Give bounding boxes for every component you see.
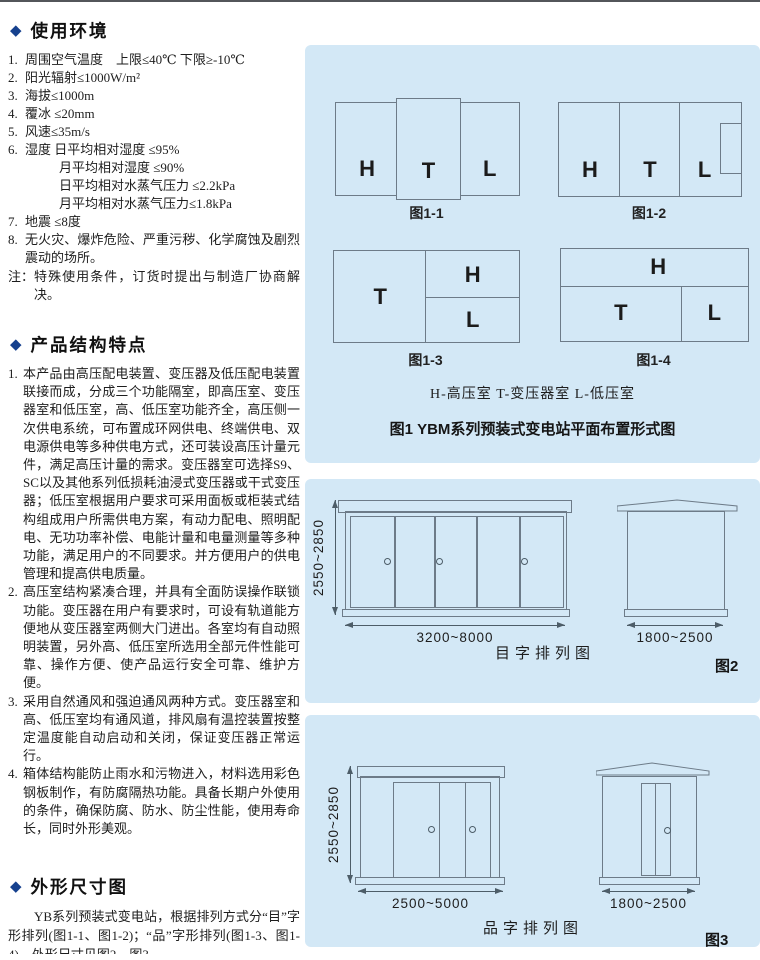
- plan-caption: 图1-2: [558, 203, 740, 223]
- cabinet-side-body: [627, 511, 725, 611]
- note-label: 注：: [8, 268, 34, 304]
- door-handle: [384, 558, 391, 565]
- door-handle: [436, 558, 443, 565]
- side-width-dimension-label: 1800~2500: [607, 630, 743, 645]
- plinth: [599, 877, 700, 885]
- env-item-text: 日平均相对水蒸气压力 ≤2.2kPa: [59, 177, 300, 195]
- section-heading-environment: ◆ 使用环境: [10, 18, 300, 43]
- env-item-subline: 月平均相对湿度 ≤90%: [8, 159, 300, 177]
- feature-number: 2.: [8, 583, 23, 692]
- left-column: ◆ 使用环境 1.周围空气温度 上限≤40℃ 下限≥-10℃ 2.阳光辐射≤10…: [8, 8, 300, 954]
- env-item-text: 周围空气温度 上限≤40℃ 下限≥-10℃: [25, 51, 300, 69]
- door-handle: [664, 827, 671, 834]
- outline-paragraph: YB系列预装式变电站，根据排列方式分“目”字形排列(图1-1、图1-2)；“品”…: [8, 907, 300, 954]
- env-item: 5.风速≤35m/s: [8, 123, 300, 141]
- room-label-l: L: [483, 156, 496, 182]
- feature-paragraph: 1.本产品由高压配电装置、变压器及低压配电装置联接而成，分成三个功能隔室，即高压…: [8, 365, 300, 583]
- env-item-number: 8.: [8, 231, 25, 267]
- elevation-caption: 品字排列图: [433, 917, 633, 938]
- small-compartment: [720, 123, 742, 173]
- room-label-t: T: [374, 284, 387, 310]
- env-item: 6.湿度 日平均相对湿度 ≤95%: [8, 141, 300, 159]
- feature-paragraph: 2.高压室结构紧凑合理，并具有全面防误操作联锁功能。变压器在用户有要求时，可设有…: [8, 583, 300, 692]
- room-label-h: H: [359, 156, 375, 182]
- room-label-h: H: [465, 262, 481, 288]
- feature-number: 3.: [8, 693, 23, 766]
- env-item-number: 4.: [8, 105, 25, 123]
- env-item: 3.海拔≤1000m: [8, 87, 300, 105]
- side-width-dimension-line: [627, 625, 723, 626]
- plan-fig1-4: H T L: [560, 248, 749, 342]
- section-title: 外形尺寸图: [31, 874, 129, 899]
- diamond-icon: ◆: [10, 23, 22, 38]
- note-row: 注： 特殊使用条件，订货时提出与制造厂协商解决。: [8, 268, 300, 304]
- height-dimension-label: 2550~2850: [326, 772, 341, 877]
- env-item: 7.地震 ≤8度: [8, 213, 300, 231]
- door-handle: [521, 558, 528, 565]
- door: [439, 782, 491, 878]
- plinth: [342, 609, 570, 617]
- door: [476, 516, 521, 608]
- room-label-h: H: [582, 157, 598, 183]
- feature-paragraph: 4.箱体结构能防止雨水和污物进入，材料选用彩色钢板制作，有防腐隔热功能。具备长期…: [8, 765, 300, 838]
- env-item-text: 覆冰 ≤20mm: [25, 105, 300, 123]
- env-item-number: 5.: [8, 123, 25, 141]
- figure2-panel: 2550~2850 3200~8000 目字排列图 图2 1800~2500: [305, 479, 760, 703]
- section-title: 产品结构特点: [31, 332, 148, 357]
- env-item-text: 风速≤35m/s: [25, 123, 300, 141]
- room-label-t: T: [643, 157, 656, 183]
- elevation-caption: 目字排列图: [445, 642, 645, 663]
- env-list: 1.周围空气温度 上限≤40℃ 下限≥-10℃ 2.阳光辐射≤1000W/m² …: [8, 51, 300, 267]
- height-dimension-line: [335, 500, 336, 615]
- door-leaf-divider: [465, 783, 466, 877]
- section-heading-features: ◆ 产品结构特点: [10, 332, 300, 357]
- room-label-t: T: [614, 300, 627, 326]
- feature-number: 1.: [8, 365, 23, 583]
- room-label-t: T: [422, 158, 435, 184]
- room-label-l: L: [708, 300, 721, 326]
- env-item-number: 7.: [8, 213, 25, 231]
- env-item-text: 湿度 日平均相对湿度 ≤95%: [25, 141, 300, 159]
- plan-caption: 图1-3: [333, 350, 518, 370]
- fig1-legend: H-高压室 T-变压器室 L-低压室: [305, 383, 760, 403]
- cabinet-side-body: [602, 776, 697, 879]
- transformer-cell: T: [396, 98, 460, 200]
- note-text: 特殊使用条件，订货时提出与制造厂协商解决。: [34, 268, 300, 304]
- plan-fig1-3: T H L: [333, 250, 520, 343]
- feature-text: 箱体结构能防止雨水和污物进入，材料选用彩色钢板制作，有防腐隔热功能。具备长期户外…: [23, 765, 300, 838]
- env-item-text: 海拔≤1000m: [25, 87, 300, 105]
- room-label-l: L: [466, 307, 479, 333]
- feature-text: 高压室结构紧凑合理，并具有全面防误操作联锁功能。变压器在用户有要求时，可设有轨道…: [23, 583, 300, 692]
- env-item-text: 月平均相对水蒸气压力≤1.8kPa: [59, 195, 300, 213]
- env-item-number: 1.: [8, 51, 25, 69]
- env-item: 4.覆冰 ≤20mm: [8, 105, 300, 123]
- env-item-text: 地震 ≤8度: [25, 213, 300, 231]
- fig1-title: 图1 YBM系列预装式变电站平面布置形式图: [305, 418, 760, 439]
- door: [394, 516, 436, 608]
- feature-text: 采用自然通风和强迫通风两种方式。变压器室和高、低压室均有通风道，排风扇有温控装置…: [23, 693, 300, 766]
- feature-number: 4.: [8, 765, 23, 838]
- plan-caption: 图1-4: [560, 350, 747, 370]
- height-dimension-line: [350, 766, 351, 883]
- env-item-subline: 月平均相对水蒸气压力≤1.8kPa: [8, 195, 300, 213]
- side-width-dimension-label: 1800~2500: [582, 896, 715, 911]
- figure-label: 图2: [715, 655, 738, 676]
- env-item-subline: 日平均相对水蒸气压力 ≤2.2kPa: [8, 177, 300, 195]
- width-dimension-label: 2500~5000: [358, 896, 503, 911]
- cabinet-body: [345, 511, 567, 611]
- plinth: [624, 609, 728, 617]
- diamond-icon: ◆: [10, 879, 22, 894]
- width-dimension-line: [358, 891, 503, 892]
- side-roof: [596, 762, 710, 776]
- feature-text: 本产品由高压配电装置、变压器及低压配电装置联接而成，分成三个功能隔室，即高压室、…: [23, 365, 300, 583]
- door-handle: [469, 826, 476, 833]
- env-item-text: 无火灾、爆炸危险、严重污秽、化学腐蚀及剧烈震动的场所。: [25, 231, 300, 267]
- room-label-l: L: [698, 157, 711, 183]
- room-label-h: H: [650, 254, 666, 280]
- height-dimension-label: 2550~2850: [311, 505, 326, 610]
- plan-fig1-1: T H L: [335, 102, 520, 196]
- feature-paragraph: 3.采用自然通风和强迫通风两种方式。变压器室和高、低压室均有通风道，排风扇有温控…: [8, 693, 300, 766]
- door-leaf-divider: [655, 784, 656, 875]
- cabinet-body: [360, 776, 500, 879]
- plan-caption: 图1-1: [335, 203, 518, 223]
- plan-fig1-2: H T L: [558, 102, 742, 197]
- top-border-line: [0, 0, 760, 2]
- env-item: 8.无火灾、爆炸危险、严重污秽、化学腐蚀及剧烈震动的场所。: [8, 231, 300, 267]
- side-width-dimension-line: [602, 891, 695, 892]
- figure3-panel: 2550~2850 2500~5000 品字排列图 图3 1800~2500: [305, 715, 760, 947]
- figure-label: 图3: [705, 929, 728, 950]
- env-item-text: 月平均相对湿度 ≤90%: [59, 159, 300, 177]
- env-item-number: 6.: [8, 141, 25, 159]
- diamond-icon: ◆: [10, 337, 22, 352]
- env-item-number: 2.: [8, 69, 25, 87]
- plinth: [355, 877, 505, 885]
- env-item-number: 3.: [8, 87, 25, 105]
- section-heading-outline: ◆ 外形尺寸图: [10, 874, 300, 899]
- env-item: 1.周围空气温度 上限≤40℃ 下限≥-10℃: [8, 51, 300, 69]
- section-title: 使用环境: [31, 18, 109, 43]
- env-item-text: 阳光辐射≤1000W/m²: [25, 69, 300, 87]
- figure1-panel: T H L 图1-1 H T L 图1-2 T H L 图1-3 H T L 图…: [305, 45, 760, 463]
- door-handle: [428, 826, 435, 833]
- env-item: 2.阳光辐射≤1000W/m²: [8, 69, 300, 87]
- width-dimension-line: [345, 625, 565, 626]
- features-list: 1.本产品由高压配电装置、变压器及低压配电装置联接而成，分成三个功能隔室，即高压…: [8, 365, 300, 838]
- page-root: { "env": { "heading": "使用环境", "items": […: [0, 0, 760, 960]
